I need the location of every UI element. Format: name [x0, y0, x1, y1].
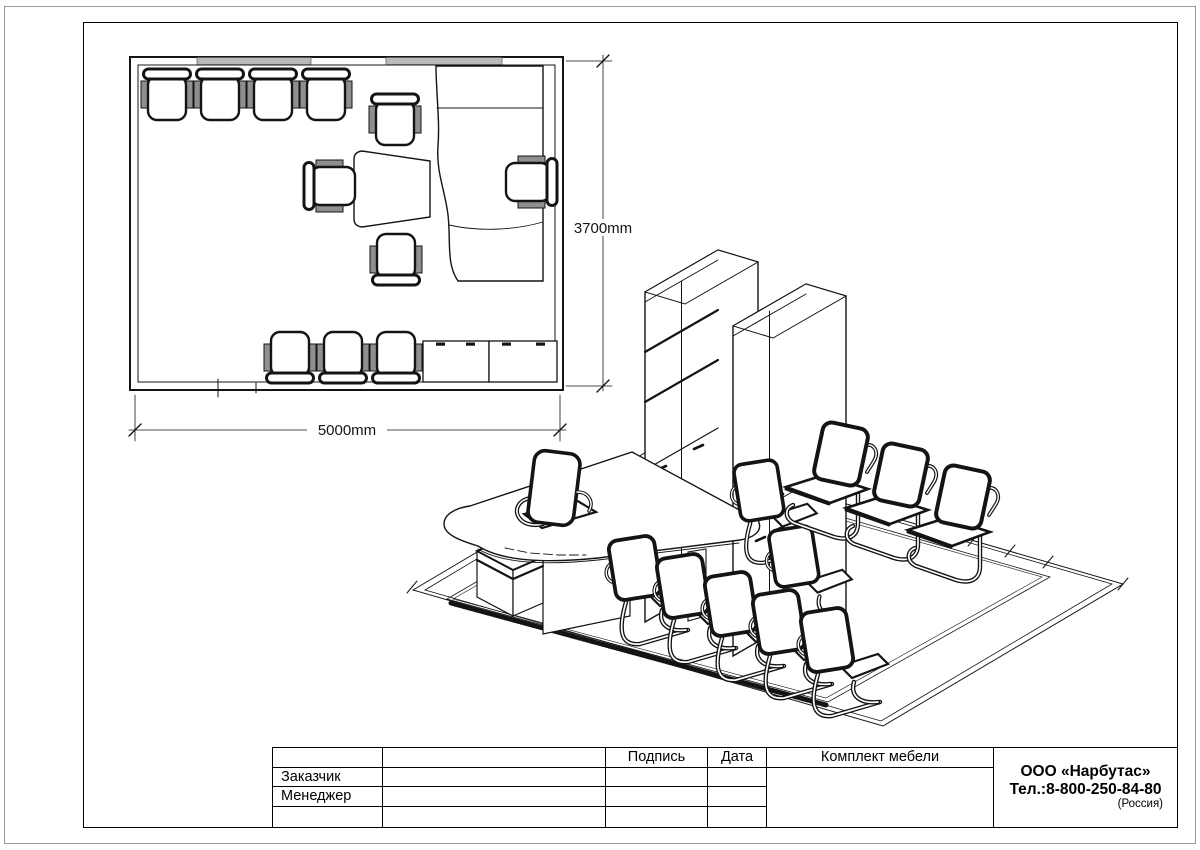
customer-label: Заказчик [273, 768, 383, 787]
title-cell-empty [708, 807, 767, 827]
plan-executive-chair [506, 156, 557, 208]
window-strip [386, 58, 502, 65]
plan-chair [317, 332, 369, 383]
plan-chair [247, 69, 299, 120]
company-country: (Россия) [1118, 799, 1171, 811]
manager-label: Менеджер [273, 787, 383, 807]
furniture-set-cell [767, 768, 994, 827]
signature-cell [606, 768, 708, 787]
drawing-sheet: 5000mm 3700mm [0, 0, 1200, 850]
title-cell-empty [383, 807, 606, 827]
plan-chair [264, 332, 316, 383]
furniture-set-header: Комплект мебели [767, 748, 994, 768]
date-cell [708, 768, 767, 787]
dimension-width: 5000mm [129, 395, 566, 441]
company-name: ООО «Нарбутас» [1020, 764, 1150, 780]
plan-chair [141, 69, 193, 120]
title-block: Подпись Дата Комплект мебели Заказчик Ме… [272, 747, 1178, 828]
title-cell-empty [383, 748, 606, 768]
company-phone: Тел.:8-800-250-84-80 [1009, 782, 1161, 798]
date-cell [708, 787, 767, 807]
window-strip [197, 58, 311, 65]
date-header: Дата [708, 748, 767, 768]
drawing-canvas: 5000mm 3700mm [0, 0, 1200, 850]
floor-plan-view: 5000mm 3700mm [129, 55, 636, 441]
plan-chair [304, 160, 355, 212]
plan-chair [370, 234, 422, 285]
title-cell-empty [273, 748, 383, 768]
dimension-width-label: 5000mm [318, 422, 376, 439]
plan-chair [300, 69, 352, 120]
company-info: ООО «Нарбутас» Тел.:8-800-250-84-80 (Рос… [994, 748, 1177, 827]
manager-value-cell [383, 787, 606, 807]
plan-chair [194, 69, 246, 120]
signature-cell [606, 787, 708, 807]
plan-cabinets [423, 341, 557, 382]
plan-extension-table [354, 151, 430, 227]
plan-chair [369, 94, 421, 145]
customer-value-cell [383, 768, 606, 787]
signature-header: Подпись [606, 748, 708, 768]
title-cell-empty [273, 807, 383, 827]
plan-chair [370, 332, 422, 383]
dimension-height-label: 3700mm [574, 220, 632, 237]
title-cell-empty [606, 807, 708, 827]
dimension-height: 3700mm [566, 55, 636, 392]
